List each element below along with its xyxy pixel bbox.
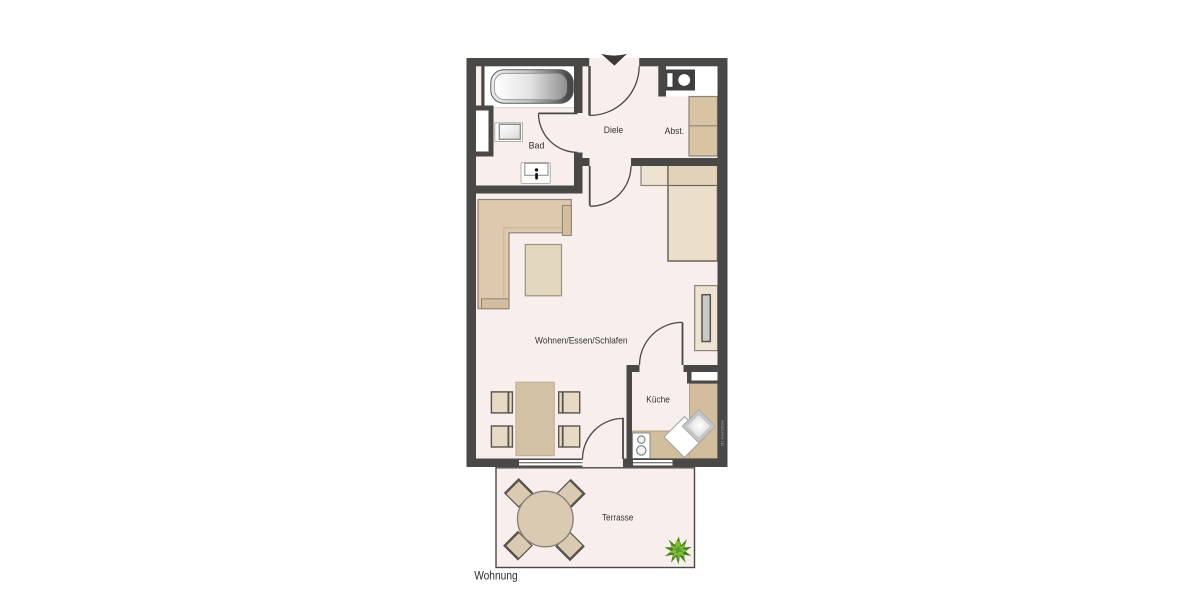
svg-text:Bad: Bad xyxy=(529,140,545,150)
svg-text:Terrasse: Terrasse xyxy=(602,512,634,523)
svg-text:Küche: Küche xyxy=(646,394,670,405)
svg-text:Wohnung: Wohnung xyxy=(474,570,518,582)
svg-text:Wohnen/Essen/Schlafen: Wohnen/Essen/Schlafen xyxy=(535,335,628,345)
svg-text:Diele: Diele xyxy=(604,125,623,135)
svg-text:M1.Grundrisse: M1.Grundrisse xyxy=(720,419,725,446)
svg-text:Abst.: Abst. xyxy=(665,126,685,136)
